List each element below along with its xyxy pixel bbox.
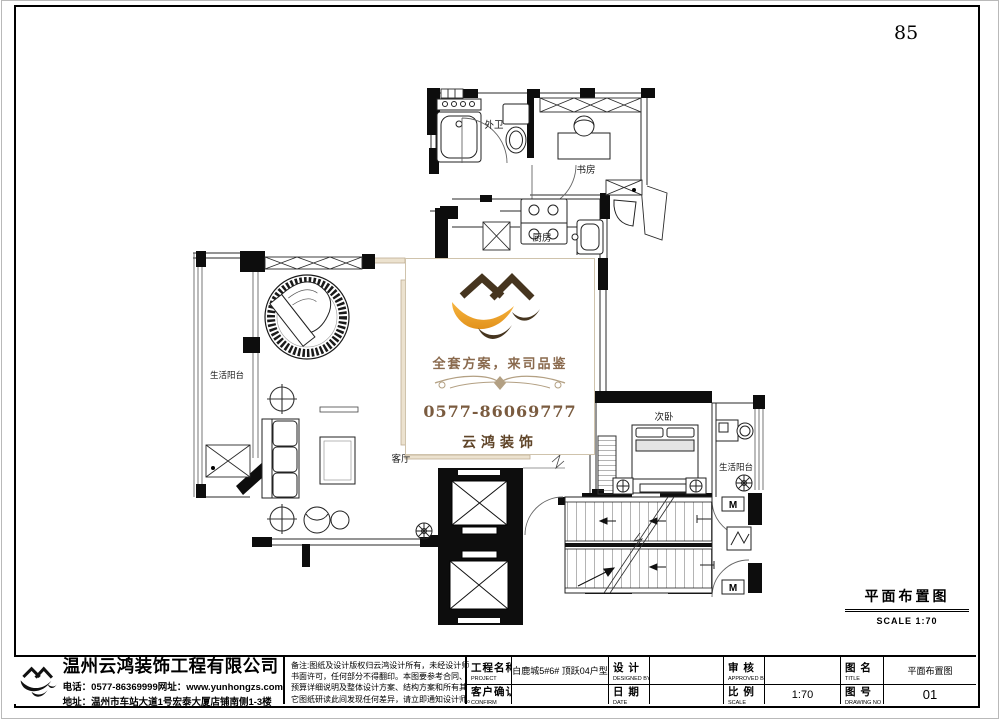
field-scale-label: 比 例SCALE: [723, 685, 764, 704]
door-marker: M: [729, 500, 737, 511]
piano-rug: [265, 272, 349, 359]
field-dwgno-label: 图 号DRAWING NO: [840, 685, 883, 704]
pillow: [636, 428, 663, 437]
company-logo-footer-icon: [18, 659, 59, 703]
lobby-door: [525, 497, 563, 535]
title-block: 温州云鸿装饰工程有限公司 电话：0577-86369999网址：www.yunh…: [14, 655, 976, 704]
bathroom-fixtures: [437, 99, 529, 162]
study-furniture: [558, 116, 636, 226]
field-date-label: 日 期DATE: [608, 685, 649, 704]
field-approve-label: 审 核APPROVED BY: [723, 657, 764, 685]
company-address: 地址：温州市车站大道1号宏泰大厦店铺南侧1-3楼: [63, 694, 283, 708]
field-title-label: 图 名TITLE: [840, 657, 883, 685]
toilet-tank: [503, 104, 529, 124]
field-project-label: 工程名称PROJECT: [467, 657, 511, 685]
field-confirm-value: [511, 685, 608, 704]
desk: [558, 133, 610, 159]
company-logo-icon: [440, 266, 560, 346]
field-design-value: [649, 657, 723, 685]
watermark-card: 全套方案，来司品鉴 0577-86069777 云鸿装饰: [405, 258, 595, 455]
company-section: 温州云鸿装饰工程有限公司 电话：0577-86369999网址：www.yunh…: [14, 657, 285, 704]
room-label-bedroom2: 次卧: [654, 411, 674, 423]
bedroom: [598, 425, 706, 494]
console-table: [320, 407, 358, 412]
sofa: [262, 419, 299, 498]
drawing-sheet: { "page": { "number": "85" }, "plan": { …: [0, 0, 1000, 719]
watermark-phone: 0577-86069777: [406, 402, 594, 421]
field-approve-value: [764, 657, 840, 685]
desk-chair: [574, 116, 594, 136]
note-line: 备注:图纸及设计版权归云鸿设计所有，未经设计师: [291, 660, 460, 671]
field-dwgno-value: 01: [883, 685, 976, 704]
living-room: [262, 272, 358, 534]
field-design-label: 设 计DESIGNED BY: [608, 657, 649, 685]
door-marker: M: [729, 583, 737, 594]
bed-bench: [640, 484, 690, 492]
note-line: 预算详细说明及整体设计方案、结构方案和所有其: [291, 682, 460, 693]
field-project-value: 白鹿城5#6# 顶跃04户型: [511, 657, 608, 685]
elevators: [438, 468, 523, 625]
room-label-outer-bath: 外卫: [484, 119, 504, 131]
drawing-title: 平面布置图: [845, 586, 969, 612]
note-line: 它图纸研读此间发现任何差异，请立即通知设计师。: [291, 694, 460, 705]
company-name: 温州云鸿装饰工程有限公司: [63, 653, 283, 678]
drawing-title-label: 平面布置图 SCALE 1:70: [845, 586, 969, 626]
field-confirm-label: 客户确认CONFIRM: [467, 685, 511, 704]
company-phone: 电话：0577-86369999网址：www.yunhongzs.com: [63, 679, 283, 693]
field-date-value: [649, 685, 723, 704]
watermark-slogan: 全套方案，来司品鉴: [406, 353, 594, 372]
watermark-brand: 云鸿装饰: [406, 432, 594, 452]
room-label-balcony-right: 生活阳台: [719, 462, 753, 472]
drawing-scale: SCALE 1:70: [845, 616, 969, 626]
stairs: [565, 497, 712, 593]
note-line: 书面许可，任何部分不得翻印。本图要参考合同、: [291, 671, 460, 682]
room-label-balcony-left: 生活阳台: [210, 370, 244, 380]
balcony-right: [716, 420, 753, 441]
stool: [331, 511, 349, 529]
flourish-ornament-icon: [430, 372, 570, 394]
switch-box: [727, 527, 751, 550]
field-scale-value: 1:70: [764, 685, 840, 704]
field-title-value: 平面布置图: [883, 657, 976, 685]
kitchen-fixtures: [521, 199, 603, 254]
coffee-table: [320, 437, 355, 484]
room-label-study: 书房: [576, 164, 595, 176]
pillow: [667, 428, 694, 437]
notes-section: 备注:图纸及设计版权归云鸿设计所有，未经设计师 书面许可，任何部分不得翻印。本图…: [285, 657, 467, 704]
fields-grid: 工程名称PROJECT 白鹿城5#6# 顶跃04户型 设 计DESIGNED B…: [467, 657, 976, 704]
lounge-chair: [614, 200, 636, 226]
room-label-kitchen: 厨房: [532, 232, 551, 244]
